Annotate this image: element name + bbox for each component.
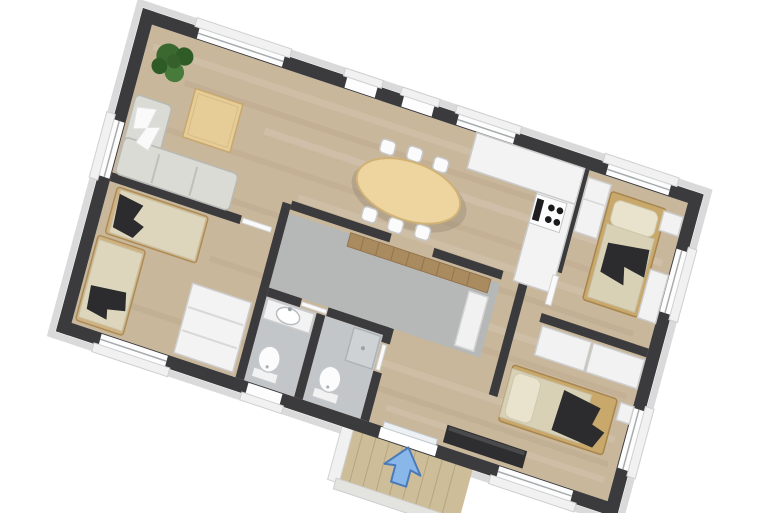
floorplan-rotated-group <box>32 0 713 513</box>
floorplan-stage <box>0 0 768 513</box>
floorplan-svg <box>0 0 768 513</box>
